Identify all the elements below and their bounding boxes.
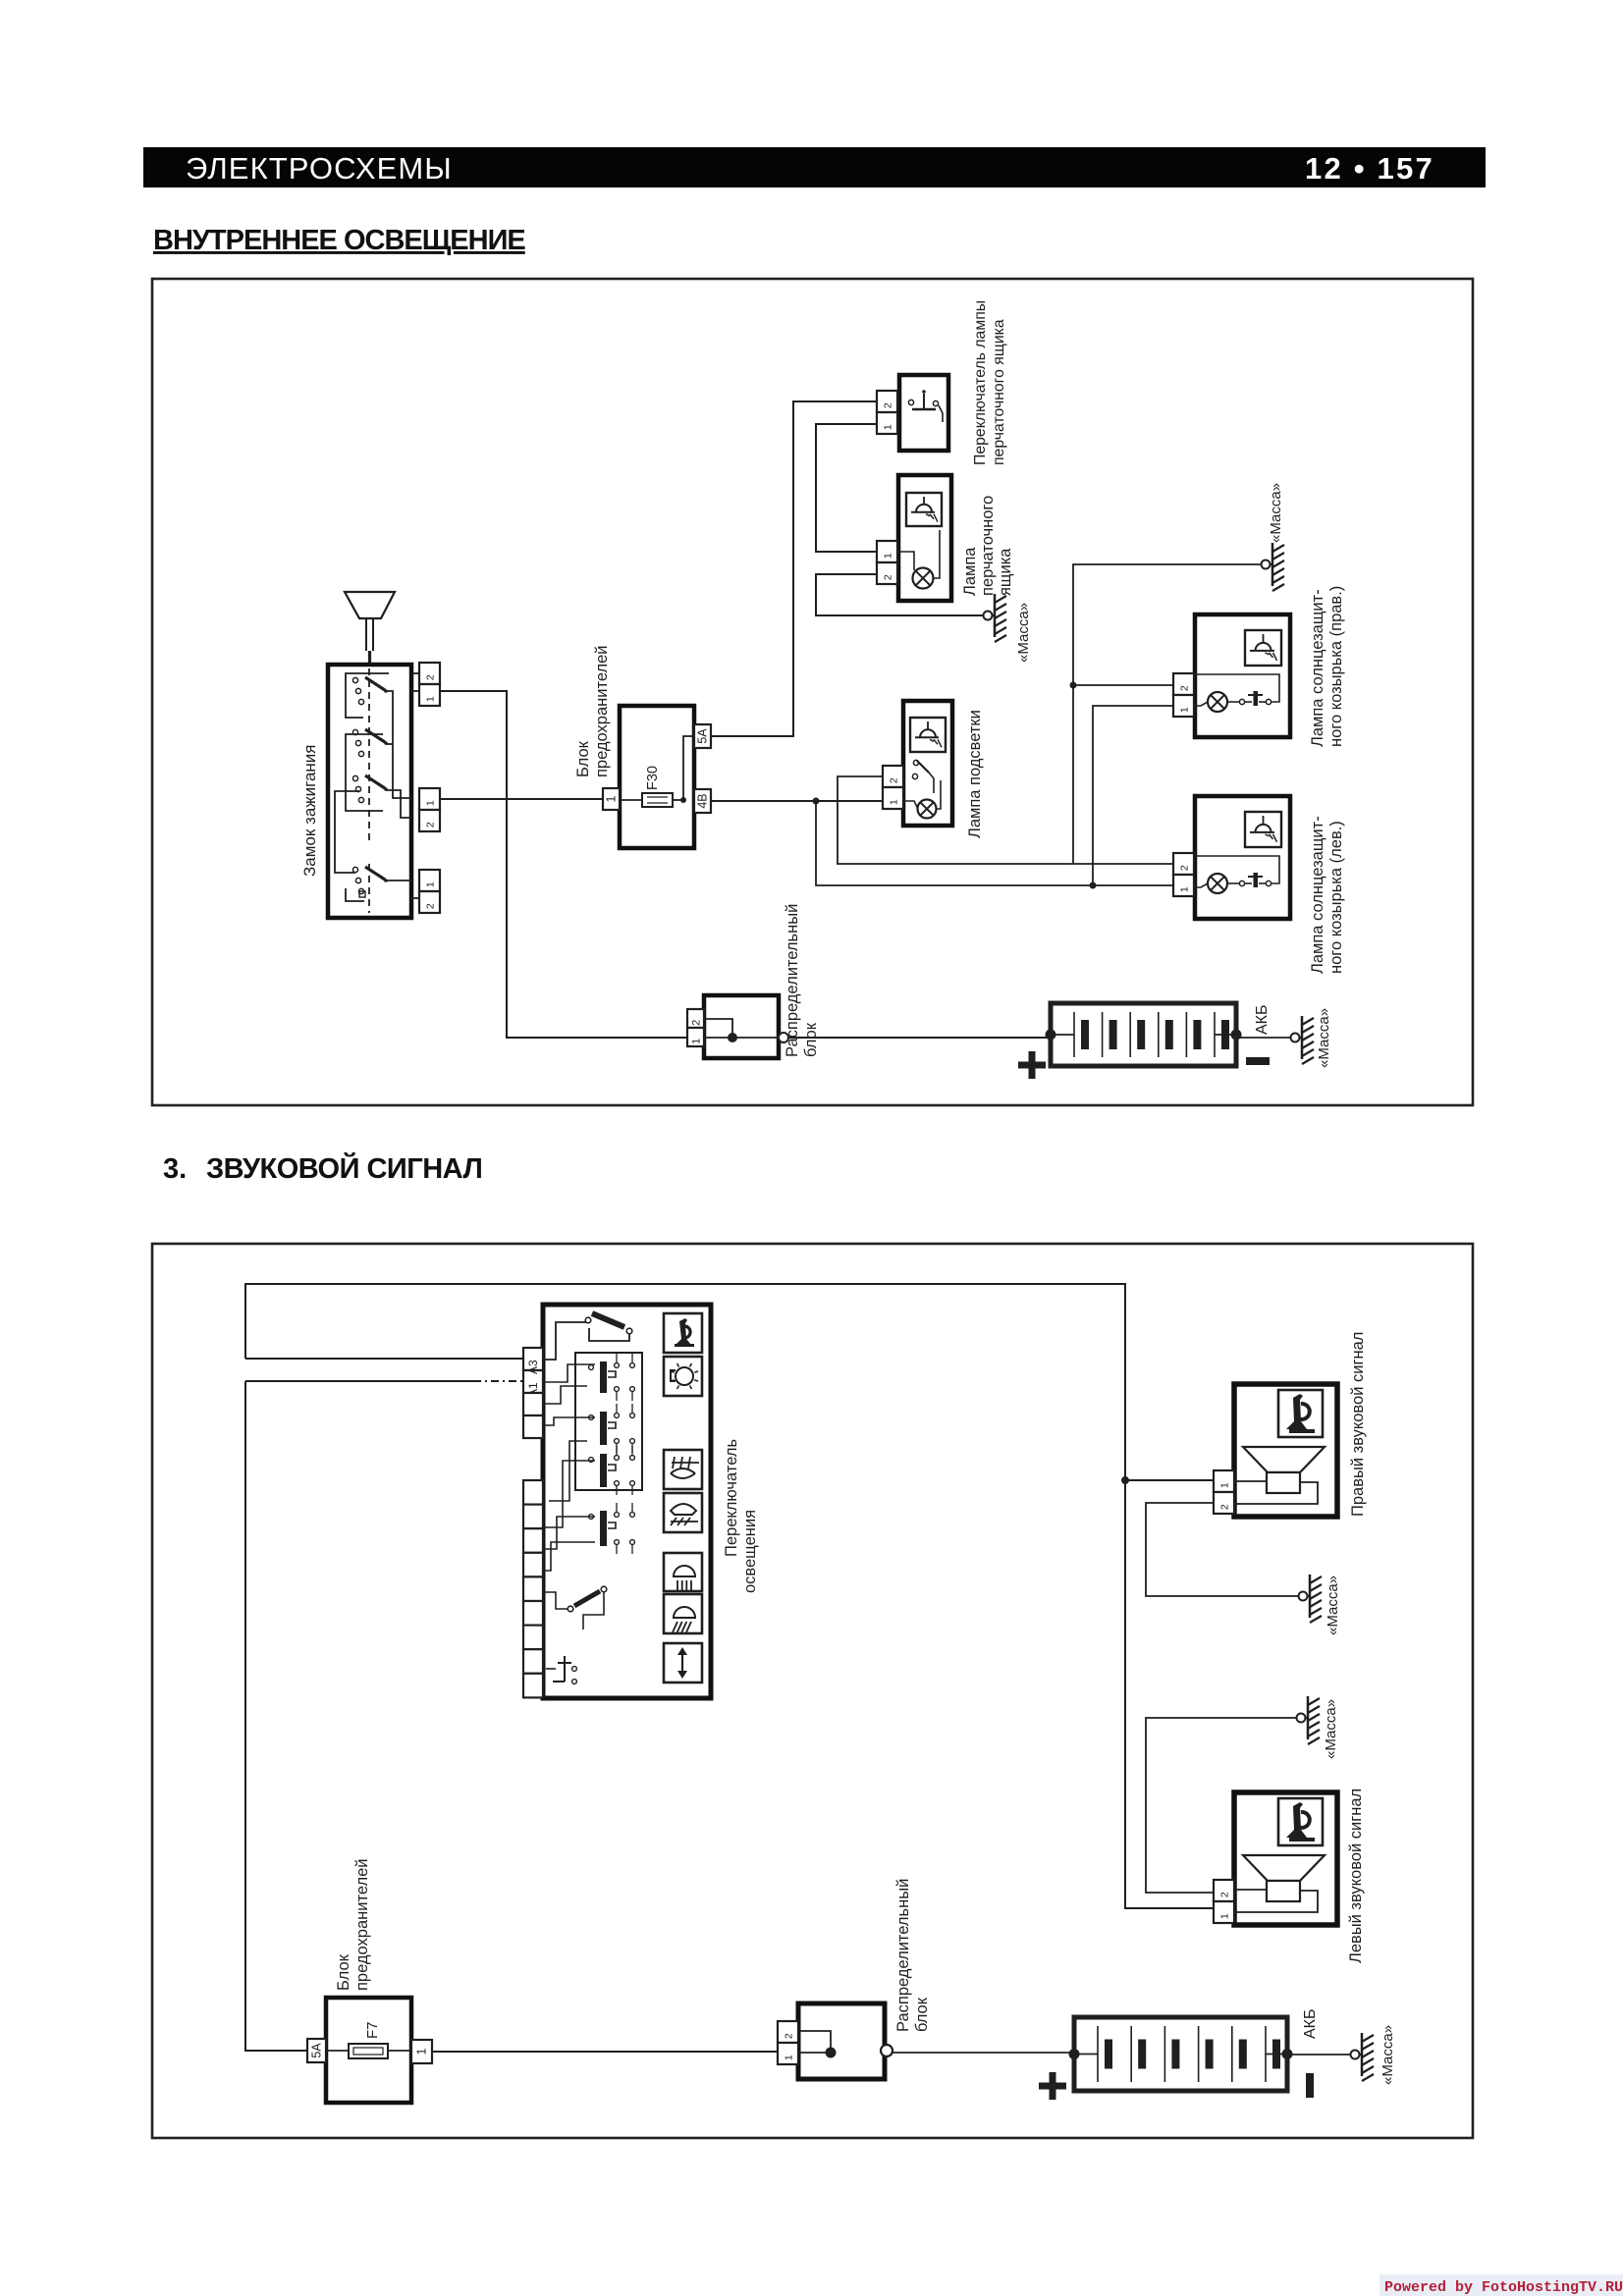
svg-text:Лампа подсветки: Лампа подсветки (966, 710, 984, 838)
svg-text:«Масса»: «Масса» (1323, 1699, 1339, 1759)
svg-text:2: 2 (691, 1020, 703, 1026)
svg-text:F7: F7 (364, 2021, 381, 2039)
svg-text:2: 2 (425, 674, 437, 680)
svg-text:12 • 157: 12 • 157 (1305, 151, 1434, 186)
svg-text:1: 1 (1219, 1482, 1231, 1488)
svg-text:ЭЛЕКТРОСХЕМЫ: ЭЛЕКТРОСХЕМЫ (186, 151, 453, 186)
svg-text:Powered by FotoHostingTV.RU: Powered by FotoHostingTV.RU (1384, 2279, 1623, 2296)
svg-text:1: 1 (784, 2055, 795, 2060)
svg-text:«Масса»: «Масса» (1325, 1575, 1341, 1635)
svg-text:2: 2 (1219, 1892, 1231, 1897)
svg-text:1: 1 (605, 795, 619, 802)
svg-text:1: 1 (425, 881, 437, 887)
svg-text:4В: 4В (696, 793, 710, 808)
svg-text:1: 1 (889, 799, 900, 805)
svg-text:F30: F30 (645, 766, 661, 790)
svg-text:«Масса»: «Масса» (1015, 603, 1032, 663)
svg-text:2: 2 (784, 2033, 795, 2039)
svg-text:2: 2 (883, 574, 894, 580)
svg-text:Переключатель: Переключатель (723, 1439, 740, 1557)
svg-text:1: 1 (883, 424, 894, 430)
svg-text:ВНУТРЕННЕЕ ОСВЕЩЕНИЕ: ВНУТРЕННЕЕ ОСВЕЩЕНИЕ (153, 225, 525, 256)
svg-text:освещения: освещения (741, 1510, 759, 1593)
svg-text:«Масса»: «Масса» (1380, 2025, 1396, 2085)
svg-text:2: 2 (883, 402, 894, 408)
svg-text:Лампа солнцезащит-ного козырьк: Лампа солнцезащит-ного козырька (прав.) (1309, 586, 1345, 747)
svg-text:АКБ: АКБ (1302, 2009, 1319, 2040)
svg-text:«Масса»: «Масса» (1268, 483, 1284, 543)
svg-text:«Масса»: «Масса» (1316, 1008, 1332, 1068)
svg-text:2: 2 (425, 822, 437, 828)
svg-text:2: 2 (889, 777, 900, 783)
svg-text:Лампа солнцезащит-ного козырьк: Лампа солнцезащит-ного козырька (лев.) (1309, 816, 1345, 974)
svg-text:ЗВУКОВОЙ СИГНАЛ: ЗВУКОВОЙ СИГНАЛ (206, 1151, 482, 1185)
svg-text:1: 1 (425, 696, 437, 702)
svg-text:Правый звуковой сигнал: Правый звуковой сигнал (1349, 1332, 1367, 1517)
svg-text:5А: 5А (696, 728, 710, 744)
svg-text:1: 1 (415, 2048, 429, 2055)
svg-text:А3: А3 (526, 1360, 540, 1374)
svg-text:2: 2 (1219, 1504, 1231, 1510)
svg-text:2: 2 (425, 903, 437, 909)
svg-text:1: 1 (1179, 886, 1191, 892)
svg-text:1: 1 (691, 1039, 703, 1044)
svg-text:5А: 5А (310, 2043, 324, 2058)
svg-text:1: 1 (883, 553, 894, 559)
svg-text:АКБ: АКБ (1254, 1005, 1271, 1036)
svg-text:1: 1 (1219, 1913, 1231, 1919)
svg-text:1: 1 (425, 800, 437, 806)
svg-text:3.: 3. (163, 1153, 187, 1185)
svg-text:2: 2 (1179, 685, 1191, 691)
svg-text:Замок зажигания: Замок зажигания (300, 744, 319, 877)
svg-text:1: 1 (1179, 707, 1191, 713)
svg-text:2: 2 (1179, 865, 1191, 871)
svg-text:Левый звуковой сигнал: Левый звуковой сигнал (1347, 1789, 1365, 1963)
